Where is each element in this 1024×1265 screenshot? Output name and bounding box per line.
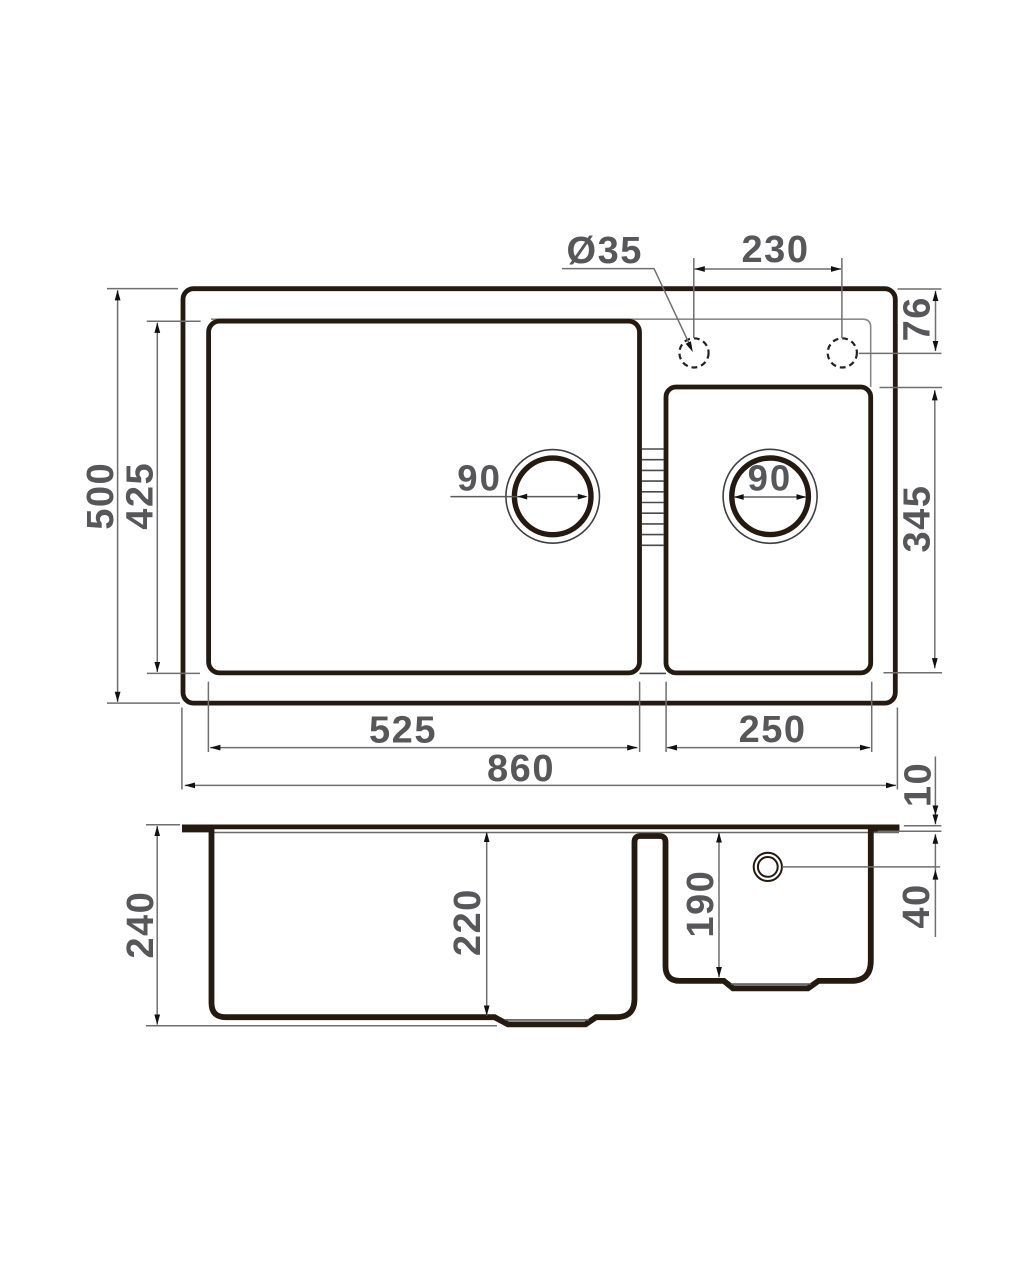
svg-text:76: 76 [897, 296, 939, 341]
svg-text:220: 220 [447, 888, 489, 956]
svg-text:90: 90 [748, 458, 793, 499]
svg-text:860: 860 [487, 748, 555, 790]
svg-text:90: 90 [457, 458, 502, 499]
svg-text:190: 190 [680, 870, 722, 938]
svg-text:10: 10 [897, 762, 939, 807]
svg-text:525: 525 [369, 709, 437, 751]
svg-text:Ø35: Ø35 [567, 230, 643, 272]
svg-text:425: 425 [119, 462, 161, 530]
svg-text:345: 345 [896, 485, 938, 553]
svg-text:40: 40 [896, 883, 938, 928]
svg-text:230: 230 [742, 229, 810, 271]
svg-text:240: 240 [120, 891, 162, 959]
svg-text:250: 250 [739, 709, 807, 751]
svg-text:500: 500 [80, 462, 122, 530]
